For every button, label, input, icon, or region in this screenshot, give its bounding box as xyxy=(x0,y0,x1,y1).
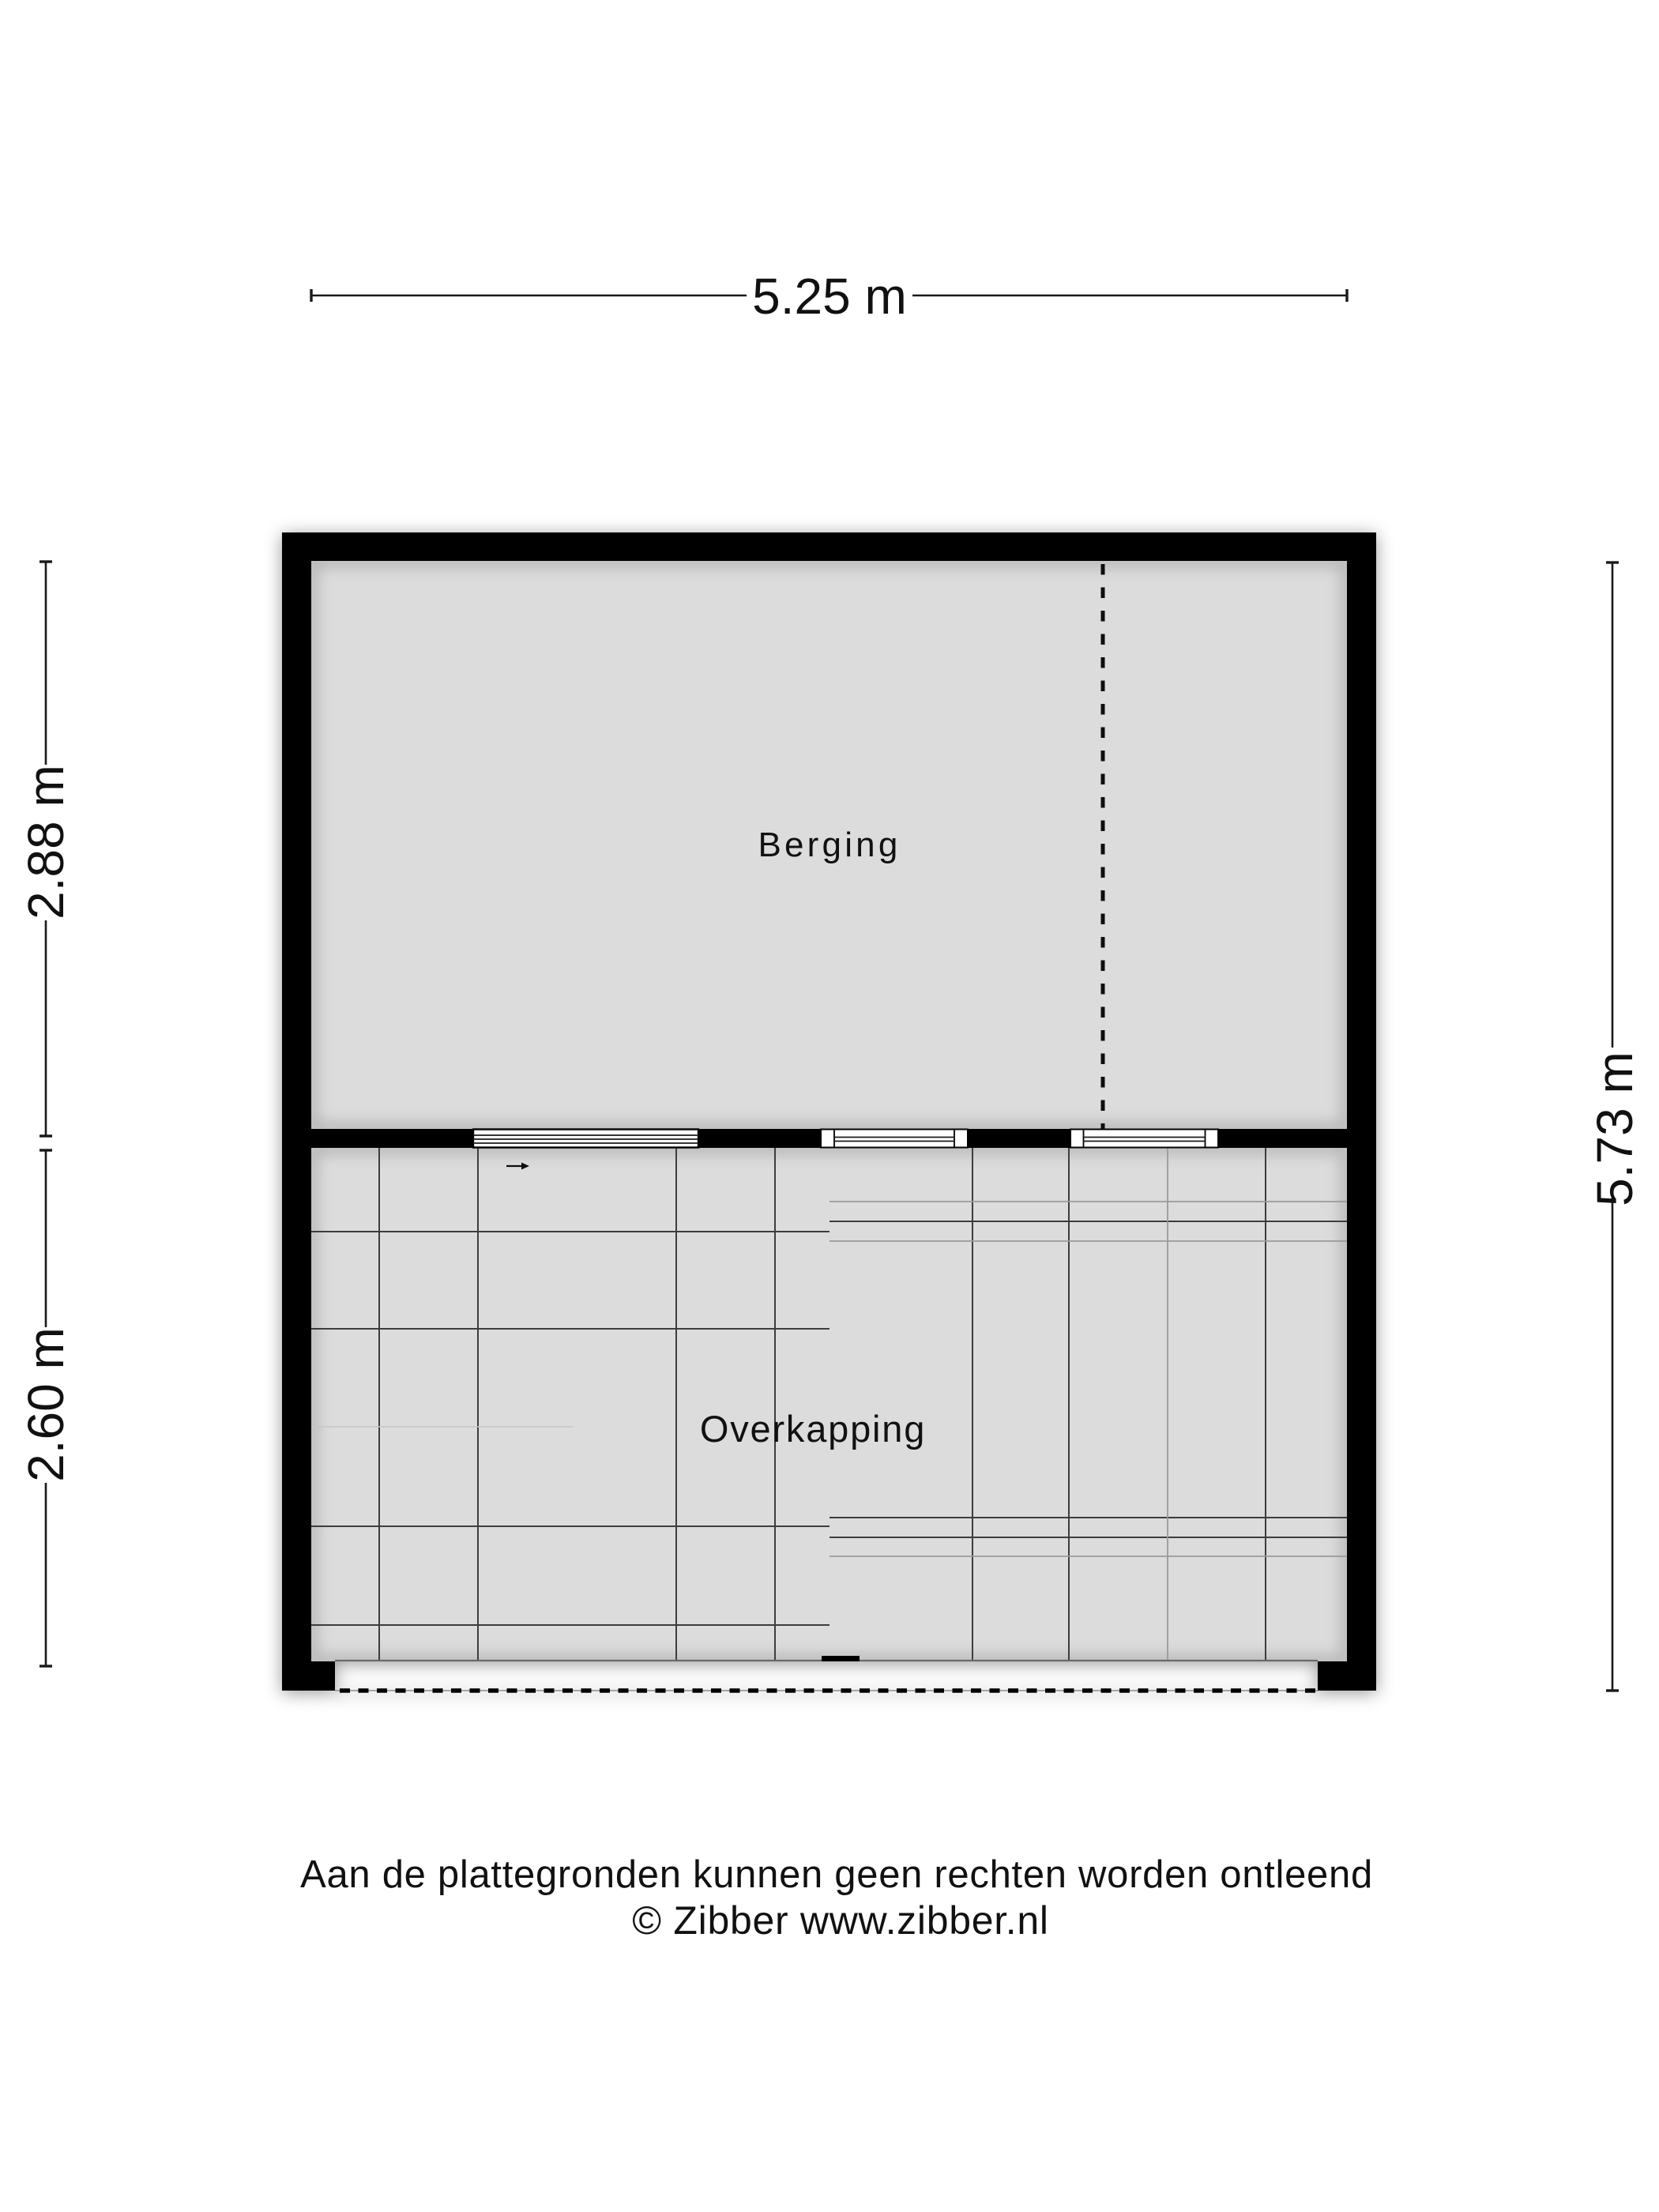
svg-text:5.25 m: 5.25 m xyxy=(752,268,907,325)
svg-text:© Zibber www.zibber.nl: © Zibber www.zibber.nl xyxy=(632,1898,1048,1943)
svg-text:2.88 m: 2.88 m xyxy=(17,765,74,920)
svg-text:2.60 m: 2.60 m xyxy=(17,1327,74,1482)
svg-text:Aan de plattegronden kunnen ge: Aan de plattegronden kunnen geen rechten… xyxy=(300,1853,1373,1896)
svg-text:5.73 m: 5.73 m xyxy=(1586,1051,1643,1206)
svg-text:Berging: Berging xyxy=(758,826,901,864)
svg-text:Overkapping: Overkapping xyxy=(700,1408,926,1450)
